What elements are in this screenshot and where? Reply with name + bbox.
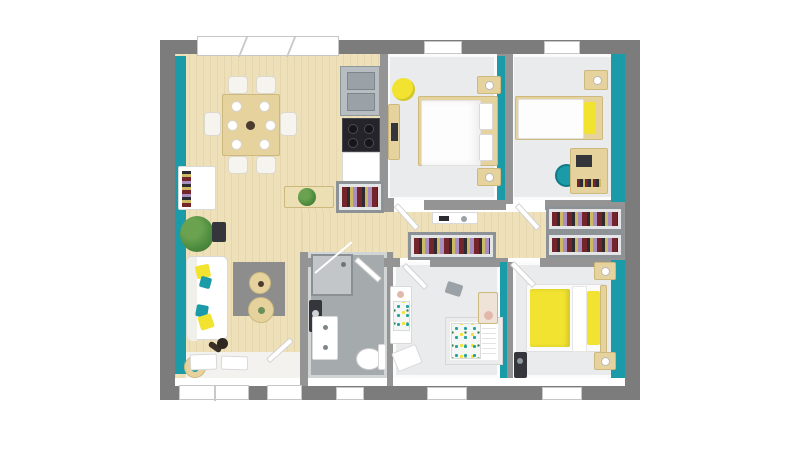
faucet [323, 325, 328, 330]
window-living [267, 385, 302, 400]
vanity-sink [312, 316, 338, 360]
desk-monitor [576, 155, 592, 167]
crib-blanket [451, 323, 481, 359]
bedside-lamp [601, 267, 610, 276]
console-decor [461, 216, 467, 222]
burner [348, 138, 358, 148]
plate [259, 139, 270, 150]
kitchen-base-cabinet [342, 152, 380, 182]
built-in-wardrobe [546, 232, 624, 258]
desk [570, 148, 608, 194]
plate [259, 101, 270, 112]
single-bed [515, 96, 603, 140]
console-table [432, 212, 478, 224]
window-mullion [214, 386, 216, 401]
sink-basin [347, 72, 375, 90]
plate [231, 101, 242, 112]
bedside-lamp [601, 357, 610, 366]
potted-plant [180, 216, 214, 252]
media-shelf [388, 104, 400, 160]
double-bed-yellow [526, 284, 606, 352]
speaker-cone [517, 358, 523, 364]
tv [391, 123, 398, 141]
nightstand [584, 70, 608, 90]
duvet [518, 99, 584, 139]
faucet [323, 345, 328, 350]
outer-wall-left [160, 40, 175, 400]
dining-chair [256, 156, 276, 174]
window-mullion [238, 37, 248, 57]
hanging-clothes [552, 212, 618, 226]
nightstand [594, 262, 616, 280]
plate [231, 139, 242, 150]
shower-drain [341, 262, 346, 267]
window-mullion [286, 37, 296, 57]
nightstand [477, 76, 501, 94]
dining-chair [256, 76, 276, 94]
throw-pillow-yellow [197, 313, 215, 331]
tv [212, 222, 226, 242]
care-item [397, 291, 404, 298]
crib-slats [482, 324, 496, 358]
accent-wall-left [175, 56, 186, 374]
coffee-table [249, 272, 271, 294]
plate [265, 120, 276, 131]
dresser-decor [484, 311, 493, 320]
pillow [479, 134, 493, 161]
dining-table [222, 94, 280, 156]
floor-plan [0, 0, 800, 450]
floor-lamp [217, 338, 228, 349]
table-decor [258, 307, 265, 314]
kitchen-cooktop [342, 118, 380, 152]
sliding-door-living [179, 385, 249, 400]
nursery-dresser [478, 292, 498, 324]
desk-books [577, 179, 601, 187]
duvet [421, 100, 481, 166]
window-master-bedroom [542, 387, 582, 400]
wall-bathroom-left [300, 252, 308, 386]
bedside-lamp [485, 81, 494, 90]
corner-shower [311, 254, 353, 296]
nightstand [594, 352, 616, 370]
dining-chair [204, 112, 221, 136]
accent-wall-bedroom2 [611, 54, 625, 202]
bay-window-dining [197, 36, 339, 56]
plate [227, 120, 238, 131]
built-in-wardrobe [546, 206, 624, 232]
changing-pad [393, 301, 410, 331]
dining-chair [228, 76, 248, 94]
window-bathroom [336, 387, 364, 400]
burner [348, 124, 358, 134]
sink-basin [347, 93, 375, 111]
speaker [514, 352, 527, 378]
crib [446, 318, 502, 364]
outer-wall-right [625, 40, 640, 400]
nightstand [477, 168, 501, 186]
hanging-clothes [342, 187, 378, 207]
toilet-tank [378, 344, 386, 370]
pillow-yellow [584, 102, 596, 134]
window-bedroom2 [544, 41, 580, 54]
doormat [221, 356, 248, 371]
changing-table [390, 286, 412, 344]
entry-shoe-wardrobe [336, 181, 384, 213]
bedside-lamp [485, 173, 494, 182]
beanbag [392, 78, 415, 101]
book-spines [182, 171, 191, 207]
dining-chair [280, 112, 297, 136]
centerpiece [246, 121, 255, 130]
window-bedroom1 [424, 41, 462, 54]
hanging-clothes [414, 238, 490, 254]
hall-wardrobe [408, 232, 496, 260]
console-decor [439, 216, 449, 221]
wall-hall-north-a [424, 200, 506, 210]
window-nursery [427, 387, 467, 400]
dining-chair [228, 156, 248, 174]
pillow [479, 103, 493, 130]
sideboard-plant [298, 188, 316, 206]
bookshelf [178, 166, 216, 210]
pillows [572, 286, 587, 352]
sofa [186, 256, 228, 340]
double-bed [418, 96, 498, 166]
kitchen-sink-unit [340, 66, 380, 116]
burner [364, 138, 374, 148]
hanging-clothes [552, 238, 618, 252]
coffee-table [248, 297, 274, 323]
throw-yellow [587, 291, 600, 345]
duvet-yellow [530, 289, 570, 347]
bedside-lamp [593, 76, 602, 85]
throw-pillow-teal [199, 276, 212, 289]
burner [364, 124, 374, 134]
headboard [600, 285, 607, 353]
doormat [190, 354, 218, 371]
table-decor [258, 281, 264, 287]
